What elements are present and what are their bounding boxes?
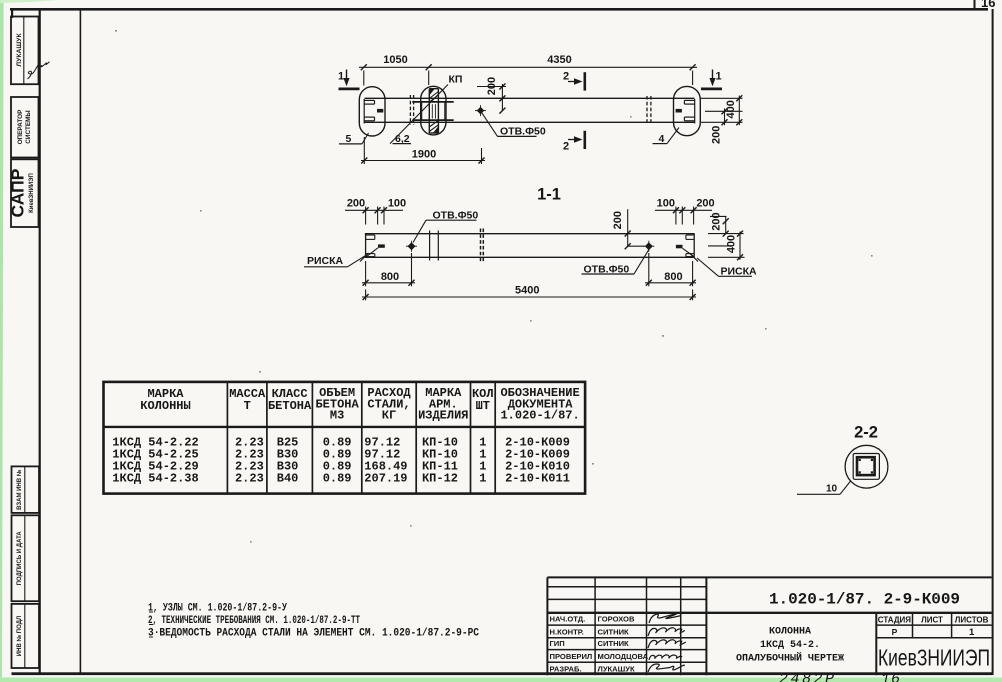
svg-text:10: 10 xyxy=(826,484,838,495)
svg-text:СТАДИЯ: СТАДИЯ xyxy=(878,615,911,624)
svg-text:КиевЗНИИЭП: КиевЗНИИЭП xyxy=(878,645,990,671)
svg-text:КП-12: КП-12 xyxy=(422,472,458,486)
svg-text:КП: КП xyxy=(449,74,463,86)
svg-text:ПОДПИСЬ И ДАТА: ПОДПИСЬ И ДАТА xyxy=(17,531,23,586)
svg-text:РИСКА: РИСКА xyxy=(307,255,344,267)
svg-text:400: 400 xyxy=(725,235,737,253)
svg-text:200: 200 xyxy=(612,211,624,229)
svg-text:ПРОВЕРИЛ: ПРОВЕРИЛ xyxy=(550,652,593,661)
svg-text:1: 1 xyxy=(969,627,975,638)
svg-text:ОПЕРАТОР: ОПЕРАТОР xyxy=(17,109,24,145)
svg-text:САПР: САПР xyxy=(8,168,28,217)
svg-text:1КСД 54-2.38: 1КСД 54-2.38 xyxy=(112,472,198,486)
svg-text:КГ: КГ xyxy=(382,409,396,423)
svg-text:СИТНИК: СИТНИК xyxy=(598,627,630,636)
svg-text:РАЗРАБ.: РАЗРАБ. xyxy=(550,665,582,674)
svg-text:1900: 1900 xyxy=(412,149,436,161)
svg-text:ЛУКАШУК: ЛУКАШУК xyxy=(598,665,636,674)
svg-text:3·ВЕДОМОСТЬ РАСХОДА СТАЛИ НА Э: 3·ВЕДОМОСТЬ РАСХОДА СТАЛИ НА ЭЛЕМЕНТ СМ.… xyxy=(148,628,479,640)
svg-text:ИЗДЕЛИЯ: ИЗДЕЛИЯ xyxy=(418,409,468,423)
svg-text:2: 2 xyxy=(563,71,569,83)
svg-text:800: 800 xyxy=(381,271,399,283)
svg-text:КиевЗНИИЭП: КиевЗНИИЭП xyxy=(29,173,35,213)
svg-text:200: 200 xyxy=(711,212,723,230)
svg-text:1: 1 xyxy=(716,71,722,83)
svg-text:СИСТЕМЫ: СИСТЕМЫ xyxy=(25,110,32,143)
svg-text:ВЗАМ ИНВ №: ВЗАМ ИНВ № xyxy=(16,469,23,510)
svg-text:ЛУКАШУК: ЛУКАШУК xyxy=(16,33,23,67)
svg-text:ГИП: ГИП xyxy=(550,639,565,648)
svg-text:ШТ: ШТ xyxy=(476,399,490,413)
svg-text:ИНВ № ПОДЛ: ИНВ № ПОДЛ xyxy=(16,616,23,656)
svg-text:16: 16 xyxy=(981,0,995,10)
svg-text:ОПАЛУБОЧНЫЙ ЧЕРТЕЖ: ОПАЛУБОЧНЫЙ ЧЕРТЕЖ xyxy=(736,651,844,665)
svg-text:2482Р: 2482Р xyxy=(779,671,837,682)
svg-text:2.23: 2.23 xyxy=(235,472,264,486)
svg-text:М3: М3 xyxy=(330,409,344,423)
svg-text:СИТНИК: СИТНИК xyxy=(598,639,630,648)
svg-text:В40: В40 xyxy=(277,472,299,486)
svg-text:5400: 5400 xyxy=(515,285,539,297)
svg-text:1: 1 xyxy=(338,71,344,83)
svg-text:Н.КОНТР.: Н.КОНТР. xyxy=(550,627,584,636)
svg-text:207.19: 207.19 xyxy=(364,472,407,486)
svg-text:800: 800 xyxy=(664,271,682,283)
svg-text:КОЛОННЫ: КОЛОННЫ xyxy=(140,399,190,413)
svg-text:100: 100 xyxy=(388,198,406,210)
svg-text:4350: 4350 xyxy=(547,54,571,66)
svg-text:1.020-1/87. 2-9-К009: 1.020-1/87. 2-9-К009 xyxy=(769,591,960,609)
svg-text:ЛИСТОВ: ЛИСТОВ xyxy=(955,615,989,624)
svg-text:2-2: 2-2 xyxy=(854,424,878,442)
svg-text:1КСД 54-2.: 1КСД 54-2. xyxy=(760,640,820,651)
svg-text:1, УЗЛЫ СМ. 1.020-1/87.2-9-У: 1, УЗЛЫ СМ. 1.020-1/87.2-9-У xyxy=(148,603,287,615)
svg-text:НАЧ.ОТД.: НАЧ.ОТД. xyxy=(550,615,586,624)
svg-text:100: 100 xyxy=(657,198,675,210)
svg-text:1.020-1/87.: 1.020-1/87. xyxy=(500,409,579,423)
svg-text:200: 200 xyxy=(347,198,365,210)
svg-text:5: 5 xyxy=(346,133,352,145)
svg-text:Р: Р xyxy=(892,627,898,637)
svg-text:ЛИСТ: ЛИСТ xyxy=(921,615,943,624)
svg-text:16: 16 xyxy=(881,671,901,682)
svg-text:2-10-К011: 2-10-К011 xyxy=(505,472,570,486)
svg-text:МОЛОДЦОВА: МОЛОДЦОВА xyxy=(598,652,649,661)
svg-text:400: 400 xyxy=(725,100,737,118)
svg-text:200: 200 xyxy=(486,77,498,95)
svg-text:ГОРОХОВ: ГОРОХОВ xyxy=(598,615,635,624)
svg-text:0.89: 0.89 xyxy=(323,472,352,486)
svg-text:1-1: 1-1 xyxy=(537,186,561,204)
svg-text:1050: 1050 xyxy=(383,54,407,66)
svg-text:БЕТОНА: БЕТОНА xyxy=(268,399,312,413)
svg-text:2, ТЕХНИЧЕСКИЕ ТРЕБОВАНИЯ СМ.: 2, ТЕХНИЧЕСКИЕ ТРЕБОВАНИЯ СМ. 1.020-1/87… xyxy=(148,615,360,627)
svg-text:200: 200 xyxy=(696,198,714,210)
svg-text:2: 2 xyxy=(563,141,569,153)
svg-text:1: 1 xyxy=(479,472,486,486)
svg-text:Т: Т xyxy=(244,399,251,413)
svg-text:200: 200 xyxy=(711,126,723,144)
svg-text:КОЛОННА: КОЛОННА xyxy=(769,627,811,638)
